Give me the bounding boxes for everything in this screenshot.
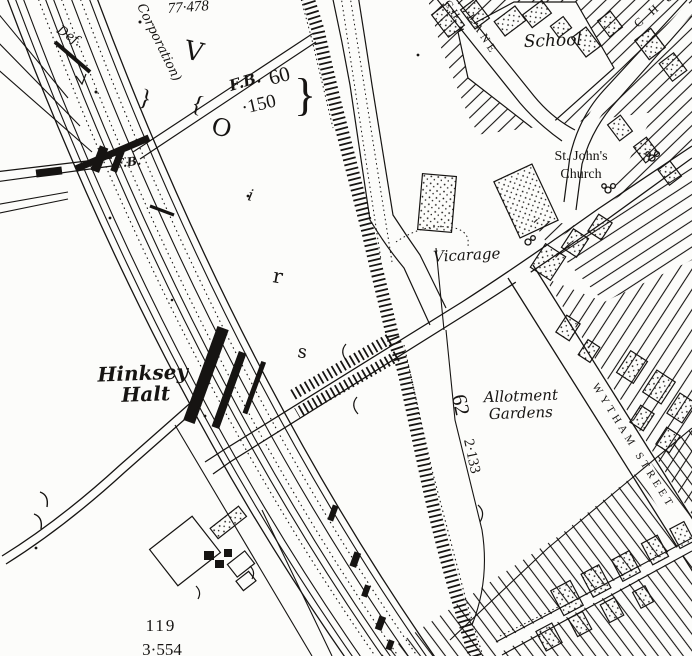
allotment-label-2: Gardens (489, 403, 554, 423)
parcel-119-area: 3·554 (142, 640, 182, 656)
parcel-119-label: 119 (146, 616, 177, 635)
school-label: School (523, 30, 582, 52)
hinksey-halt-label-2: Halt (120, 381, 171, 407)
st-johns-label-1: St. John's (554, 149, 607, 164)
brace-60: } (294, 69, 316, 120)
vicarage-label: Vicarage (433, 244, 501, 266)
st-johns-label-2: Church (560, 167, 601, 182)
map-canvas: 77·478 Def. Corporation) V O i r s F.B. … (0, 0, 692, 656)
os-map-svg: 77·478 Def. Corporation) V O i r s F.B. … (0, 0, 692, 656)
benchmark-label: 77·478 (167, 0, 210, 17)
vicarage-building (418, 174, 457, 233)
